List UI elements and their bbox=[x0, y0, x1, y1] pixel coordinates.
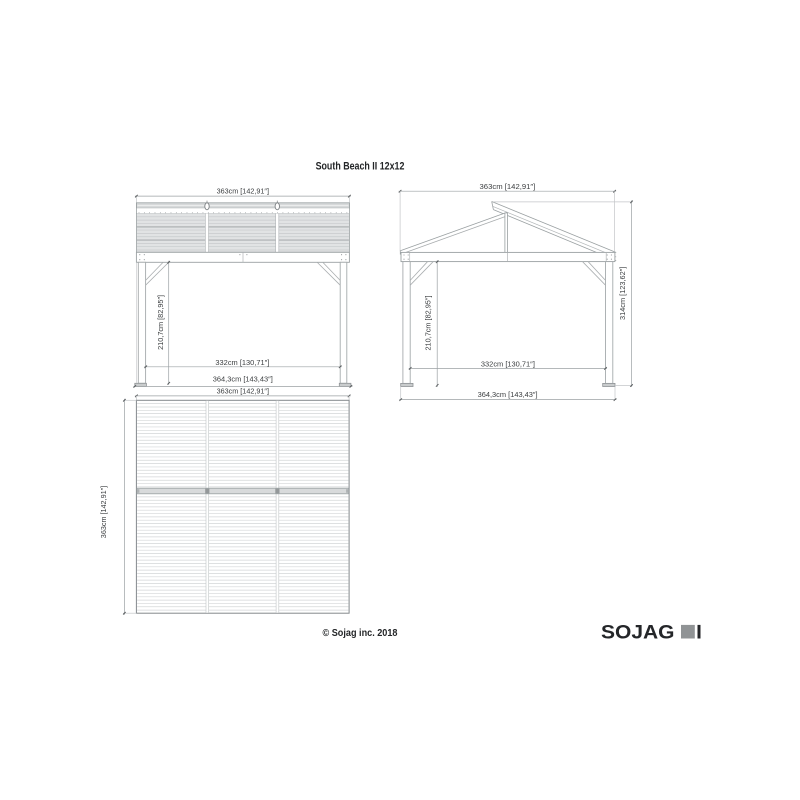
svg-text:332cm [130,71″]: 332cm [130,71″] bbox=[481, 360, 535, 369]
svg-text:363cm [142,91″]: 363cm [142,91″] bbox=[99, 486, 108, 538]
svg-text:South Beach II 12x12: South Beach II 12x12 bbox=[316, 160, 405, 172]
svg-text:363cm [142,91″]: 363cm [142,91″] bbox=[480, 182, 536, 191]
svg-text:363cm [142,91″]: 363cm [142,91″] bbox=[217, 186, 269, 195]
svg-text:364,3cm [143,43″]: 364,3cm [143,43″] bbox=[478, 390, 538, 399]
svg-text:332cm [130,71″]: 332cm [130,71″] bbox=[215, 358, 269, 367]
svg-text:SOJAG: SOJAG bbox=[601, 622, 675, 643]
svg-text:210,7cm [82,95″]: 210,7cm [82,95″] bbox=[423, 296, 432, 351]
svg-text:© Sojag inc. 2018: © Sojag inc. 2018 bbox=[323, 628, 398, 639]
svg-text:314cm [123,62″]: 314cm [123,62″] bbox=[618, 267, 627, 320]
svg-text:210,7cm [82,95″]: 210,7cm [82,95″] bbox=[156, 295, 165, 350]
svg-text:363cm [142,91″]: 363cm [142,91″] bbox=[217, 387, 269, 396]
svg-text:364,3cm [143,43″]: 364,3cm [143,43″] bbox=[213, 375, 273, 384]
